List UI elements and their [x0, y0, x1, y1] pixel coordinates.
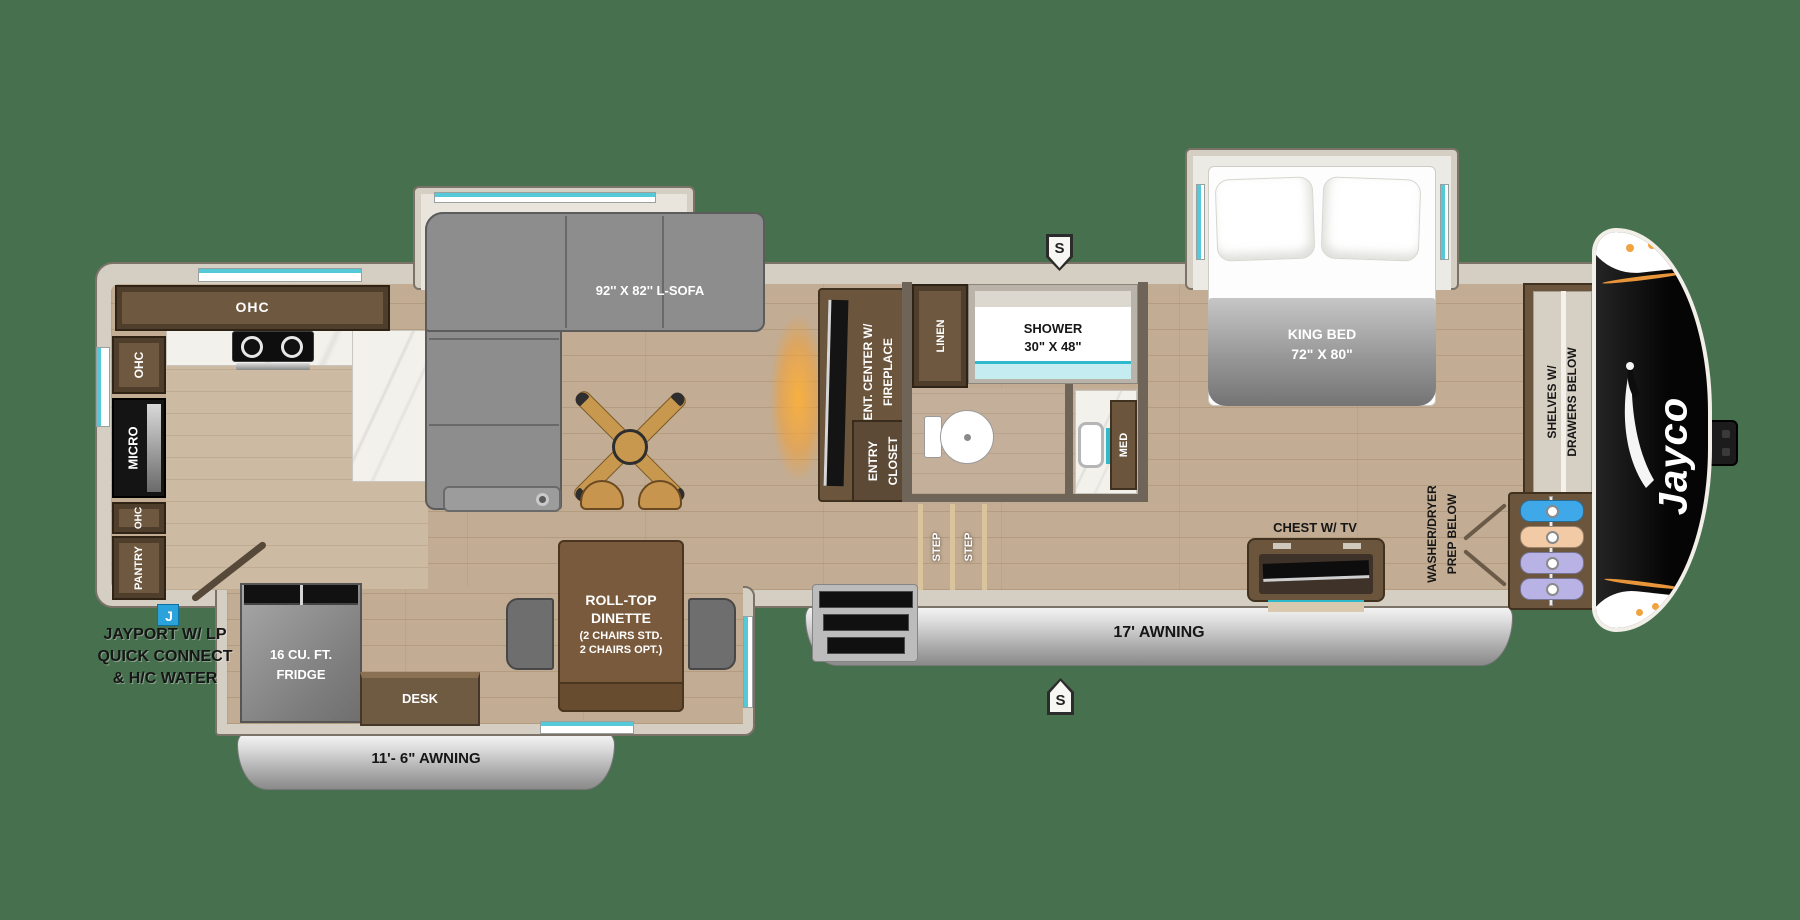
chest-handle-icon — [1273, 543, 1291, 549]
rolltop-cap — [558, 682, 684, 712]
king-bed-label-2: 72" X 80" — [1208, 346, 1436, 362]
hitch-bolt-icon — [1722, 448, 1730, 456]
shelves-cabinet — [1523, 283, 1602, 523]
kitchen-ohc-lower-label: OHC — [134, 507, 145, 529]
hitch-bolt-icon — [1722, 430, 1730, 438]
cap-marker-light-icon — [1648, 241, 1656, 249]
dinette-label-3: (2 CHAIRS STD. — [558, 630, 684, 643]
ent-center-label-1: ENT. CENTER W/ — [861, 324, 875, 421]
dinette-chair — [688, 598, 736, 670]
washer-dryer-label-2: PREP BELOW — [1445, 494, 1459, 574]
washer-dryer-label-1: WASHER/DRYER — [1425, 485, 1439, 583]
pillow — [1215, 176, 1316, 261]
cooktop — [232, 331, 314, 362]
bath-wall-left — [902, 282, 912, 502]
step-tread — [827, 637, 905, 654]
entry-closet-label-1: ENTRY — [866, 441, 880, 481]
dinette-rear-window — [540, 721, 634, 734]
kitchen-ohc-top-label: OHC — [115, 299, 390, 315]
microwave-label: MICRO — [126, 426, 141, 469]
sofa-seam — [662, 216, 664, 328]
jayport-badge: J — [157, 604, 179, 626]
shelves-label-1: SHELVES W/ — [1545, 365, 1559, 438]
cap-marker-light-icon — [1626, 244, 1634, 252]
step-tread — [823, 614, 909, 631]
shower-pan — [975, 361, 1131, 379]
chest-handle-icon — [1343, 543, 1361, 549]
interior-step-edge — [982, 504, 987, 590]
kitchen-floor-lower — [166, 478, 428, 590]
dinette-label-1: ROLL-TOP — [558, 592, 684, 608]
dinette-label-2: DINETTE — [558, 610, 684, 626]
shelves-label-2: DRAWERS BELOW — [1565, 347, 1579, 456]
chest-with-tv — [1247, 538, 1385, 602]
microwave-door — [147, 404, 161, 492]
kitchen-window — [198, 268, 362, 282]
chest-step-pad — [1268, 600, 1364, 612]
burner-icon — [281, 336, 303, 358]
bath-wall-right — [1138, 282, 1148, 502]
tv-icon — [1263, 560, 1370, 582]
step-label-right: STEP — [963, 533, 975, 562]
awning-11ft-label: 11'- 6" AWNING — [237, 750, 615, 767]
hanger-hook-icon — [1546, 583, 1559, 596]
dinette-end-window — [743, 616, 753, 708]
hanger-hook-icon — [1546, 557, 1559, 570]
jayco-logo: Jayco — [1652, 397, 1697, 515]
vanity-sink-icon — [1078, 422, 1104, 468]
bedroom-window-left — [1196, 184, 1205, 260]
step-tread — [819, 591, 913, 608]
fan-hub-icon — [612, 429, 648, 465]
fridge-door-split — [300, 585, 303, 605]
king-bed-label-1: KING BED — [1208, 326, 1436, 342]
front-cap: Jayco — [1592, 228, 1712, 632]
cap-top-swoosh — [1592, 228, 1706, 278]
floorplan-canvas: 17' AWNING 11'- 6" AWNING OHC — [0, 0, 1800, 920]
sofa-label: 92'' X 82'' L-SOFA — [530, 284, 770, 299]
sofa-seam — [429, 338, 559, 340]
sofa-armrest — [443, 486, 561, 512]
burner-icon — [241, 336, 263, 358]
toilet — [924, 410, 994, 466]
entry-closet-label-2: CLOSET — [886, 437, 900, 486]
cap-top-accent — [1602, 271, 1686, 285]
l-sofa-back — [425, 212, 765, 332]
kitchen-ohc-upper-label: OHC — [132, 352, 146, 379]
toilet-drain-icon — [964, 434, 971, 441]
sofa-seam — [429, 424, 559, 426]
bedroom-window-right — [1440, 184, 1449, 260]
dinette-label-4: 2 CHAIRS OPT.) — [558, 644, 684, 657]
jayport-note-3: & H/C WATER — [60, 670, 270, 688]
jayport-note-1: JAYPORT W/ LP — [60, 626, 270, 644]
cap-bottom-swoosh — [1592, 586, 1700, 632]
chest-label: CHEST W/ TV — [1245, 521, 1385, 536]
speaker-marker-bottom: S — [1047, 678, 1074, 715]
med-label: MED — [1118, 433, 1130, 457]
shower-label-2: 30" X 48" — [968, 340, 1138, 355]
sofa-seam — [565, 216, 567, 328]
dinette-chair — [506, 598, 554, 670]
exterior-entry-steps — [812, 584, 918, 662]
cooktop-vent — [236, 363, 310, 370]
jayport-badge-letter: J — [158, 608, 180, 624]
pantry-label: PANTRY — [133, 546, 145, 590]
interior-step-edge — [918, 504, 923, 590]
rear-window — [96, 347, 110, 427]
hanger-hook-icon — [1546, 505, 1559, 518]
cupholder-icon — [536, 493, 549, 506]
interior-step-edge — [950, 504, 955, 590]
linen-label: LINEN — [935, 320, 947, 353]
sofa-slide-window — [434, 192, 656, 203]
ent-center-label-2: FIREPLACE — [881, 338, 895, 406]
cap-marker-light-icon — [1636, 609, 1643, 616]
jayport-note-2: QUICK CONNECT — [60, 648, 270, 666]
shower-shelf — [975, 291, 1131, 307]
hanger-hook-icon — [1546, 531, 1559, 544]
pillow — [1321, 176, 1422, 261]
kitchen-counter-island — [352, 330, 428, 482]
bath-wall-bottom — [902, 494, 1148, 502]
shower-label-1: SHOWER — [968, 322, 1138, 337]
cap-bottom-accent — [1604, 577, 1684, 591]
desk-label: DESK — [360, 692, 480, 707]
step-label-left: STEP — [931, 533, 943, 562]
bath-wall-sink-nook — [1065, 384, 1073, 496]
cap-marker-light-icon — [1652, 603, 1659, 610]
